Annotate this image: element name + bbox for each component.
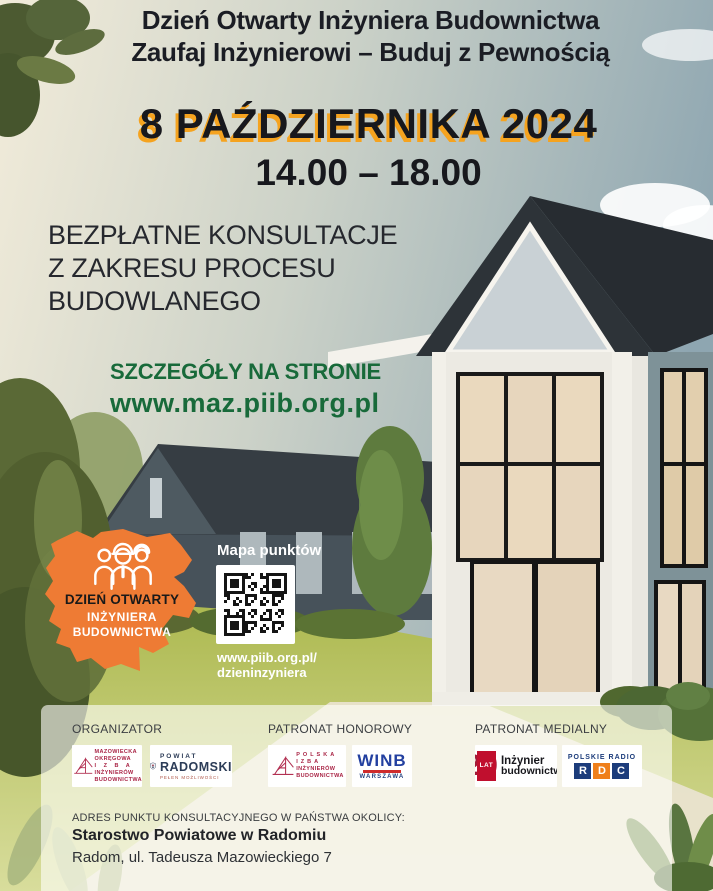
logo-text: I Z B A [95, 763, 142, 770]
details-label: SZCZEGÓŁY NA STRONIE [110, 359, 381, 385]
logo-text: POWIAT [160, 753, 232, 760]
offer-line-1: BEZPŁATNE KONSULTACJE [48, 219, 397, 252]
winb-red-bar [363, 770, 401, 773]
offer-line-3: BUDOWLANEGO [48, 285, 397, 318]
address-name: Starostwo Powiatowe w Radomiu [72, 827, 326, 845]
logo-winb: WINB WARSZAWA [352, 745, 412, 787]
engineers-icon [88, 541, 158, 591]
logo-text: 20 LAT [475, 752, 498, 780]
logo-text: OKRĘGOWA [95, 756, 142, 763]
event-date: 8 PAŹDZIERNIKA 2024 [30, 100, 707, 148]
poster-root: Dzień Otwarty Inżyniera Budownictwa Zauf… [0, 0, 713, 891]
offer-text: BEZPŁATNE KONSULTACJE Z ZAKRESU PROCESU … [48, 219, 397, 318]
logo-text: LAT [477, 751, 497, 781]
logo-text: INŻYNIERÓW [296, 766, 343, 773]
logo-text: POLSKA [296, 752, 343, 759]
address-street: Radom, ul. Tadeusza Mazowieckiego 7 [72, 849, 332, 866]
logo-text: MAZOWIECKA [95, 749, 142, 756]
logo-powiat-radomski: POWIAT RADOMSKI PEŁEN MOŻLIWOŚCI [150, 745, 232, 787]
title-line-1: Dzień Otwarty Inżyniera Budownictwa [34, 4, 707, 36]
qr-section-title: Mapa punktów [217, 542, 321, 559]
logo-text: WARSZAWA [360, 774, 405, 780]
truss-icon [270, 749, 296, 783]
poland-map-badge: DZIEŃ OTWARTY INŻYNIERA BUDOWNICTWA [43, 528, 196, 673]
logo-text: BUDOWNICTWA [296, 773, 343, 780]
badge-line-1: DZIEŃ OTWARTY [51, 592, 193, 607]
logo-moiib: MAZOWIECKA OKRĘGOWA I Z B A INŻYNIERÓW B… [72, 745, 142, 787]
logo-text: C [612, 763, 629, 779]
truss-icon [72, 750, 95, 782]
event-time: 14.00 – 18.00 [30, 152, 707, 194]
logo-text: IZBA [296, 759, 343, 766]
logo-text: POLSKIE RADIO [568, 754, 636, 761]
qr-link[interactable]: www.piib.org.pl/ dzieninzyniera [217, 650, 317, 680]
offer-line-2: Z ZAKRESU PROCESU [48, 252, 397, 285]
details-block: SZCZEGÓŁY NA STRONIE www.maz.piib.org.pl [110, 359, 381, 419]
qr-code [216, 565, 295, 644]
logo-text: budownictwa [501, 766, 557, 776]
logo-text: WINB [357, 752, 406, 769]
logo-piib: POLSKA IZBA INŻYNIERÓW BUDOWNICTWA [268, 745, 346, 787]
media-heading: PATRONAT MEDIALNY [475, 722, 607, 736]
logo-inzynier-budownictwa: 20 LAT Inżynier budownictwa [475, 745, 557, 787]
poster-title: Dzień Otwarty Inżyniera Budownictwa Zauf… [34, 4, 707, 68]
tall-tree [352, 426, 432, 616]
details-url[interactable]: www.maz.piib.org.pl [110, 388, 381, 419]
logo-text: PEŁEN MOŻLIWOŚCI [160, 775, 232, 780]
qr-link-line-2[interactable]: dzieninzyniera [217, 665, 317, 680]
organizer-heading: ORGANIZATOR [72, 722, 162, 736]
title-line-2: Zaufaj Inżynierowi – Buduj z Pewnością [34, 36, 707, 68]
crest-icon [150, 756, 156, 776]
qr-link-line-1[interactable]: www.piib.org.pl/ [217, 650, 317, 665]
address-label: ADRES PUNKTU KONSULTACYJNEGO W PAŃSTWA O… [72, 812, 405, 824]
badge-line-2: INŻYNIERA [51, 610, 193, 624]
honorary-heading: PATRONAT HONOROWY [268, 722, 412, 736]
logo-text: D [593, 763, 610, 779]
logo-rdc: POLSKIE RADIO R D C [562, 745, 642, 787]
logo-text: R [574, 763, 591, 779]
logo-text: BUDOWNICTWA [95, 777, 142, 784]
logo-text: INŻYNIERÓW [95, 770, 142, 777]
logo-text: RADOMSKI [160, 760, 232, 774]
badge-line-3: BUDOWNICTWA [51, 625, 193, 639]
